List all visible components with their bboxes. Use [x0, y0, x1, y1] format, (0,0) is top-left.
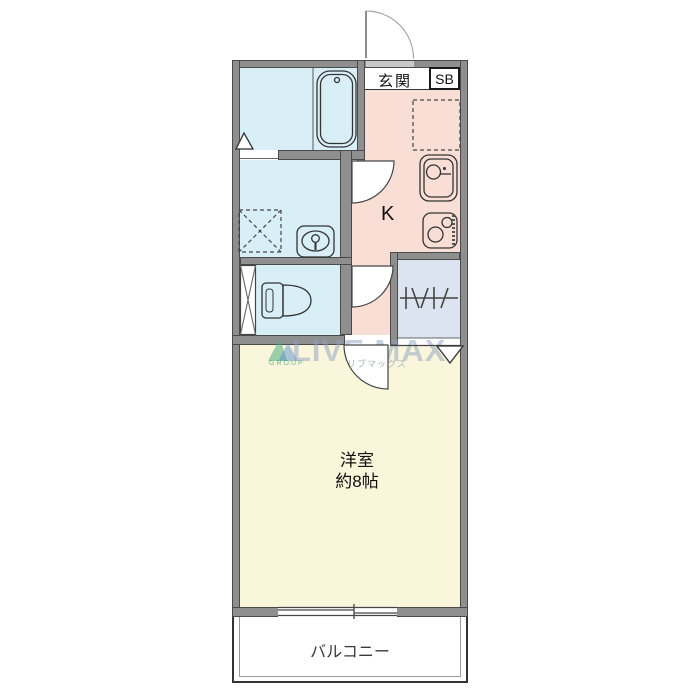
- room-size: 約8帖: [297, 471, 417, 492]
- watermark-katakana: リブマックス: [347, 357, 407, 370]
- wall: [390, 252, 460, 260]
- toilet-area: [256, 265, 340, 335]
- room-name: 洋室: [297, 450, 417, 471]
- pipe-space-icon: [241, 266, 256, 335]
- bathroom-door-opening: [240, 150, 278, 160]
- bathroom-area: [240, 68, 357, 150]
- kitchen-area: [365, 90, 460, 160]
- entrance-threshold: [366, 61, 414, 67]
- kitchen-label: K: [381, 203, 394, 226]
- wall: [357, 60, 365, 164]
- shoe-box-label: SB: [435, 71, 454, 87]
- entrance-label: 玄関: [366, 70, 424, 91]
- floor-plan: SB GROUP LIVE MAX リブマックス: [0, 0, 700, 700]
- wall: [390, 252, 398, 345]
- wall: [240, 257, 352, 265]
- shoe-box: SB: [429, 67, 460, 90]
- window-opening: [278, 607, 397, 617]
- washroom-area: [240, 160, 340, 257]
- entrance-door: [366, 11, 414, 59]
- room-label: 洋室 約8帖: [297, 450, 417, 492]
- wall: [340, 150, 352, 335]
- balcony-label: バルコニー: [290, 638, 410, 662]
- closet-area: [398, 260, 460, 338]
